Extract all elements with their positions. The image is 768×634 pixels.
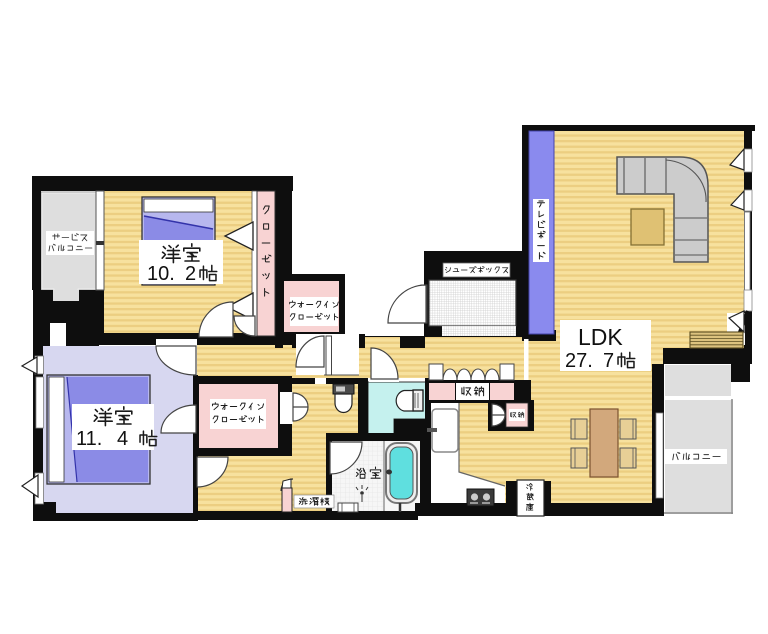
svg-text:11.: 11. xyxy=(76,428,102,450)
svg-text:4: 4 xyxy=(117,428,128,450)
svg-text:10.: 10. xyxy=(147,263,175,285)
svg-text:7: 7 xyxy=(603,350,614,372)
svg-text:2: 2 xyxy=(185,263,196,285)
svg-text:LDK: LDK xyxy=(578,324,623,350)
svg-text:27.: 27. xyxy=(565,350,593,372)
